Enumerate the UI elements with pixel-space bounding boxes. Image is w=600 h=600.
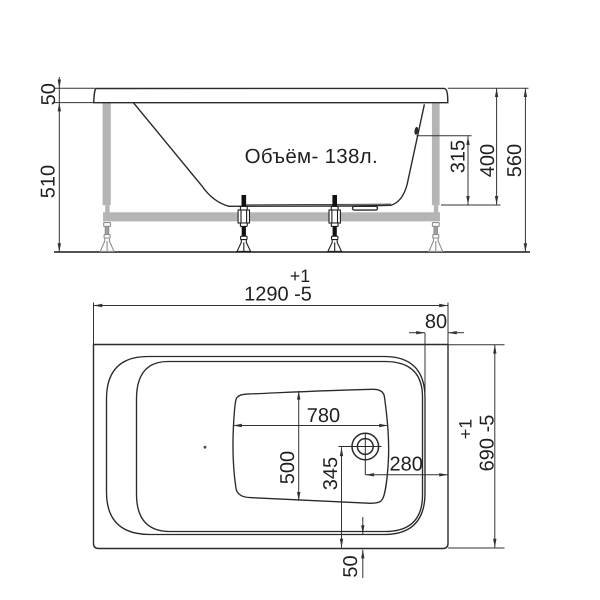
svg-text:50: 50 — [38, 83, 60, 105]
svg-text:Объём- 138л.: Объём- 138л. — [245, 145, 378, 168]
svg-text:400: 400 — [477, 144, 499, 177]
svg-text:+1: +1 — [290, 266, 311, 286]
svg-text:80: 80 — [425, 311, 447, 333]
svg-text:345: 345 — [320, 457, 342, 490]
svg-text:690 -5: 690 -5 — [477, 415, 499, 472]
svg-text:50: 50 — [340, 555, 362, 577]
svg-text:560: 560 — [504, 144, 526, 177]
svg-text:510: 510 — [38, 165, 60, 198]
svg-text:500: 500 — [277, 451, 299, 484]
svg-text:780: 780 — [307, 405, 340, 427]
svg-text:+1: +1 — [456, 419, 476, 440]
svg-text:315: 315 — [448, 140, 470, 173]
svg-text:1290 -5: 1290 -5 — [244, 284, 312, 306]
svg-text:280: 280 — [390, 454, 423, 476]
